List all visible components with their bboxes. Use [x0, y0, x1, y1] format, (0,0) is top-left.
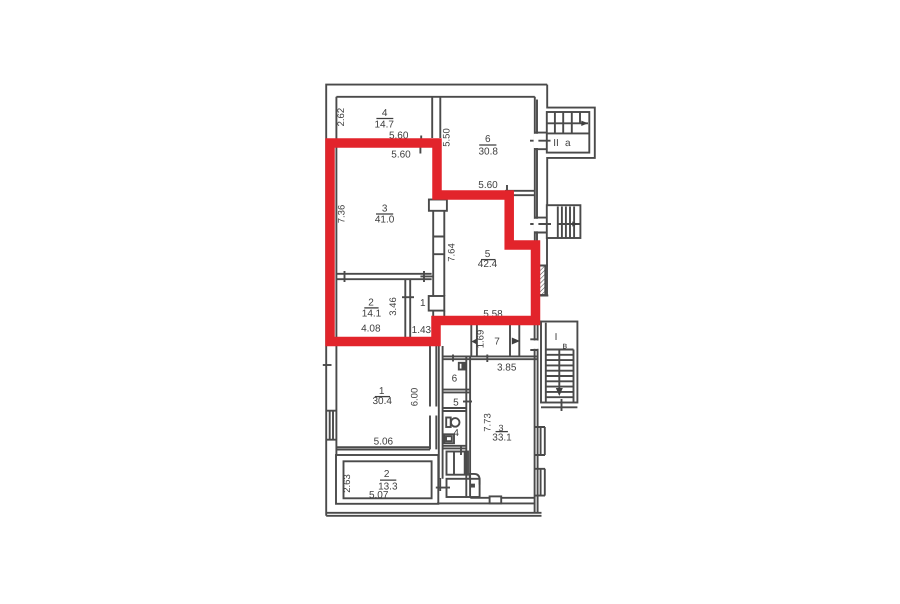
svg-text:7.36: 7.36: [337, 205, 348, 224]
svg-text:2: 2: [368, 298, 374, 309]
svg-text:в: в: [562, 341, 567, 351]
svg-text:7: 7: [494, 337, 500, 348]
svg-text:4: 4: [453, 428, 459, 439]
svg-text:3.85: 3.85: [497, 362, 517, 373]
svg-text:7.73: 7.73: [483, 413, 494, 432]
svg-text:5.06: 5.06: [374, 437, 394, 448]
svg-text:30.4: 30.4: [372, 396, 392, 407]
svg-text:30.8: 30.8: [478, 146, 498, 157]
svg-text:42.4: 42.4: [478, 259, 498, 270]
svg-text:2: 2: [384, 469, 390, 480]
svg-text:II: II: [553, 138, 559, 149]
svg-text:4.08: 4.08: [361, 324, 381, 335]
svg-text:41.0: 41.0: [375, 215, 395, 226]
svg-text:6.00: 6.00: [410, 388, 421, 407]
svg-text:14.7: 14.7: [374, 120, 394, 131]
svg-text:6: 6: [452, 374, 458, 385]
svg-text:1.69: 1.69: [475, 330, 486, 349]
svg-text:5.50: 5.50: [441, 128, 452, 147]
svg-text:6: 6: [485, 134, 491, 145]
svg-text:5: 5: [453, 397, 459, 408]
svg-text:I: I: [555, 332, 558, 343]
svg-text:2.62: 2.62: [336, 108, 347, 127]
svg-text:5.60: 5.60: [391, 149, 411, 160]
svg-text:3: 3: [382, 204, 388, 215]
svg-text:7.64: 7.64: [447, 243, 458, 262]
svg-text:4: 4: [382, 108, 388, 119]
svg-text:3.46: 3.46: [388, 297, 399, 316]
svg-text:5.60: 5.60: [478, 180, 498, 191]
svg-text:2.63: 2.63: [342, 474, 353, 493]
svg-text:1.43: 1.43: [412, 325, 432, 336]
svg-text:14.1: 14.1: [362, 308, 382, 319]
svg-text:a: a: [565, 138, 571, 149]
svg-text:33.1: 33.1: [492, 433, 512, 444]
svg-text:5.07: 5.07: [369, 490, 389, 501]
svg-text:1: 1: [420, 298, 426, 309]
